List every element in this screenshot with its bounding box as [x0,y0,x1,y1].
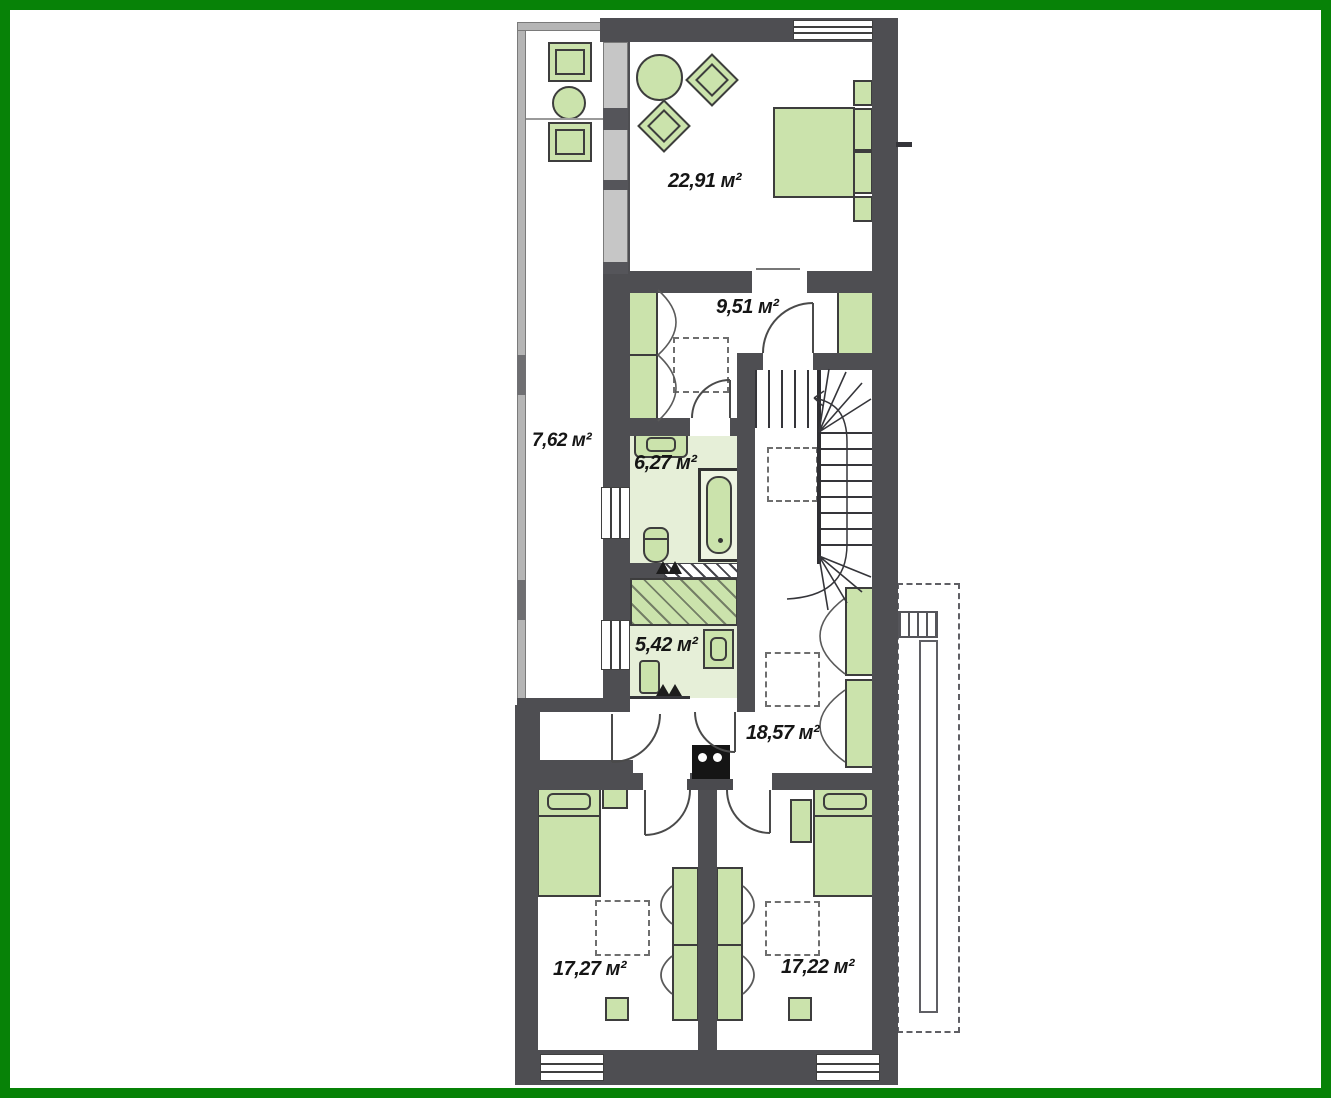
wall-laundry-corner [603,678,630,712]
exterior-chimney-hatch [897,611,938,638]
wall-bedroom-divider [698,773,717,1085]
chimney-base [687,779,733,790]
loggia-divider-line [526,118,603,120]
laundry-small-unit [639,660,660,694]
chair-arc [661,886,672,924]
wall-west-lower [515,760,538,1085]
stool-right [788,997,812,1021]
wardrobe-dressing-left [628,285,658,423]
loggia-post-2 [517,580,526,620]
loggia-post-1 [517,355,526,395]
room-label-bedroom-right: 17,22 м² [781,956,854,979]
chimney-block [692,745,730,779]
armchair-cushion [555,49,585,75]
armchair-cushion [647,109,681,143]
loggia-armchair-1 [548,42,592,82]
round-table [636,54,683,101]
bed-blanket-line [539,815,599,817]
bed-pillow-bottom [853,151,873,194]
loggia-armchair-2 [548,122,592,162]
pillow [547,793,591,810]
window-south-left [540,1054,604,1081]
skylight-bedroom-left [595,900,650,956]
nightstand-right-room [790,799,812,843]
loggia-wall-south-cap [517,698,603,712]
dimension-tick-east [896,142,912,147]
bed-left [537,787,601,897]
double-bed [773,107,855,198]
nightstand-left-room [602,787,628,809]
skylight-bedroom-right [765,901,820,956]
desk-right [716,867,743,1021]
wall-bath-stairhall [737,353,755,712]
glazing-mullion-2 [603,180,628,190]
window-south-right [816,1054,880,1081]
stair-stringer [817,368,821,564]
loggia-wall-north [517,22,603,31]
wardrobe-laundry [630,578,738,626]
bathtub-drain [718,538,723,543]
wardrobe-shelf-line [630,354,656,356]
toilet-tank-line [645,538,667,540]
door-opening-bedroom-dressing [752,271,807,293]
room-label-bathroom: 6,27 м² [634,452,696,475]
pillow [823,793,867,810]
toilet [643,527,669,563]
desk-divider-line [674,944,697,946]
room-label-laundry: 5,42 м² [635,634,697,657]
washing-machine [703,629,734,669]
loggia-table [552,86,586,120]
bed-blanket-line [815,815,875,817]
skylight-dressing [673,337,729,393]
skylight-hall [765,652,820,707]
washer-drum [710,637,727,661]
bed-pillow-top [853,108,873,151]
glazing-mullion-1 [603,108,628,130]
room-label-bedroom-left: 17,27 м² [553,958,626,981]
room-label-bedroom-top: 22,91 м² [668,170,741,193]
wall-bedroom-dressing [630,271,872,293]
chair-arc [743,886,754,924]
stair-upper-run [755,368,817,428]
nightstand-bottom [853,196,873,222]
door-opening-dressing-bath [690,418,730,436]
door-opening-bedroom-right [727,773,772,790]
winder-fan-top [819,369,871,432]
room-label-dressing: 9,51 м² [716,296,778,319]
desk-left [672,867,699,1021]
roof-edge-line [919,640,938,1013]
wall-east [872,18,898,1085]
glazed-wall-loggia [603,42,628,274]
door-arc-vestibule-left [612,714,660,762]
sliding-door-bath [664,563,738,578]
skylight-stairhall [767,447,818,502]
stair-right-run [821,432,872,558]
armchair-cushion [555,129,585,155]
bed-right [813,787,877,897]
wardrobe-arc-hall-lower [820,690,845,762]
armchair-diamond-2 [637,99,691,153]
flue-opening-left [698,753,707,762]
chair-arc [661,956,672,994]
door-arc-bedroom-left [645,790,690,835]
wardrobe-arc-hall-upper [820,598,845,674]
nightstand-top [853,80,873,106]
door-arc-bedroom-right [727,790,770,833]
floor-plan-canvas: 22,91 м² 9,51 м² 7,62 м² 6,27 м² 5,42 м²… [0,0,1331,1098]
door-opening-dressing-stairhall [763,353,813,370]
room-label-hall: 18,57 м² [746,722,819,745]
door-opening-bedroom-left [643,773,690,790]
desk-divider-line [718,944,741,946]
wardrobe-dressing-right [837,287,877,357]
room-label-loggia: 7,62 м² [532,430,591,452]
armchair-diamond-1 [685,53,739,107]
wall-dressing-bath [603,418,755,436]
stool-left [605,997,629,1021]
chair-arc [743,956,754,994]
window-bathroom-west [601,487,630,539]
flue-opening-right [713,753,722,762]
window-laundry-west [601,620,630,670]
window-north [793,20,873,40]
glazing-mullion-3 [603,262,628,274]
laundry-threshold-line [630,696,690,699]
armchair-cushion [695,63,729,97]
sink-basin [646,437,676,452]
bathtub [698,468,740,562]
